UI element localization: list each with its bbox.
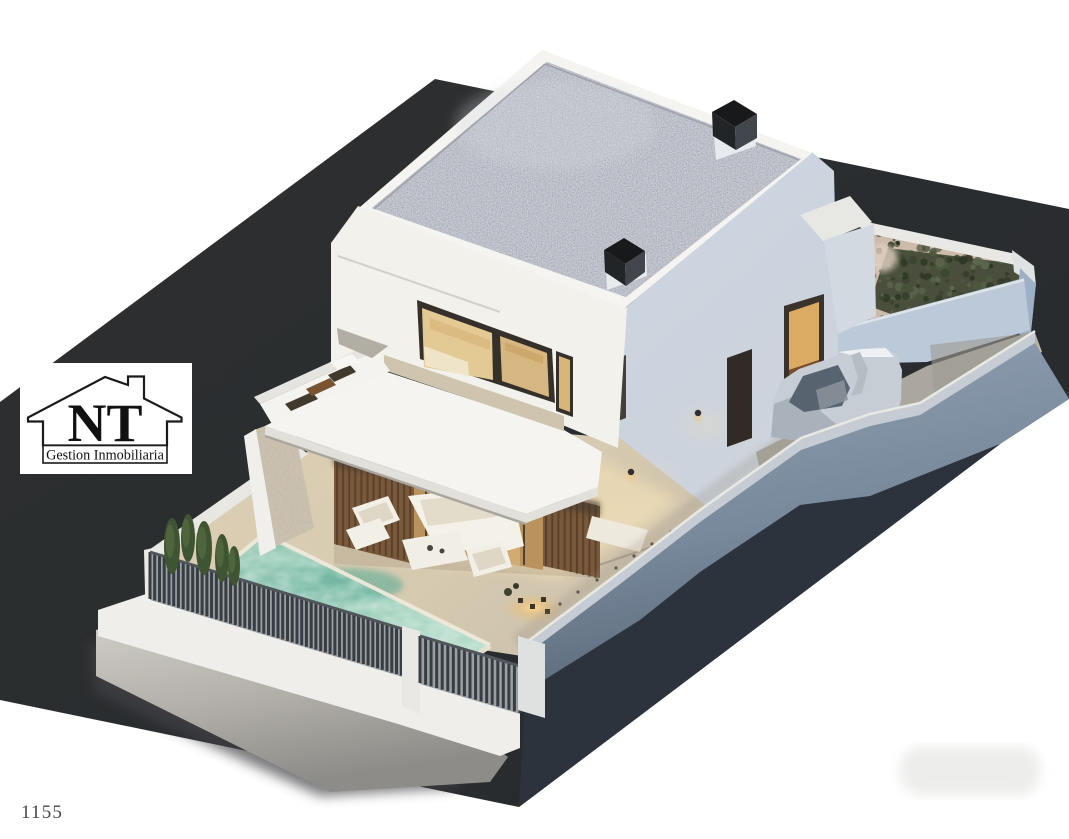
svg-text:1155: 1155 bbox=[21, 802, 63, 823]
svg-text:NT: NT bbox=[67, 393, 142, 453]
svg-text:Gestion Inmobiliaria: Gestion Inmobiliaria bbox=[46, 448, 165, 464]
